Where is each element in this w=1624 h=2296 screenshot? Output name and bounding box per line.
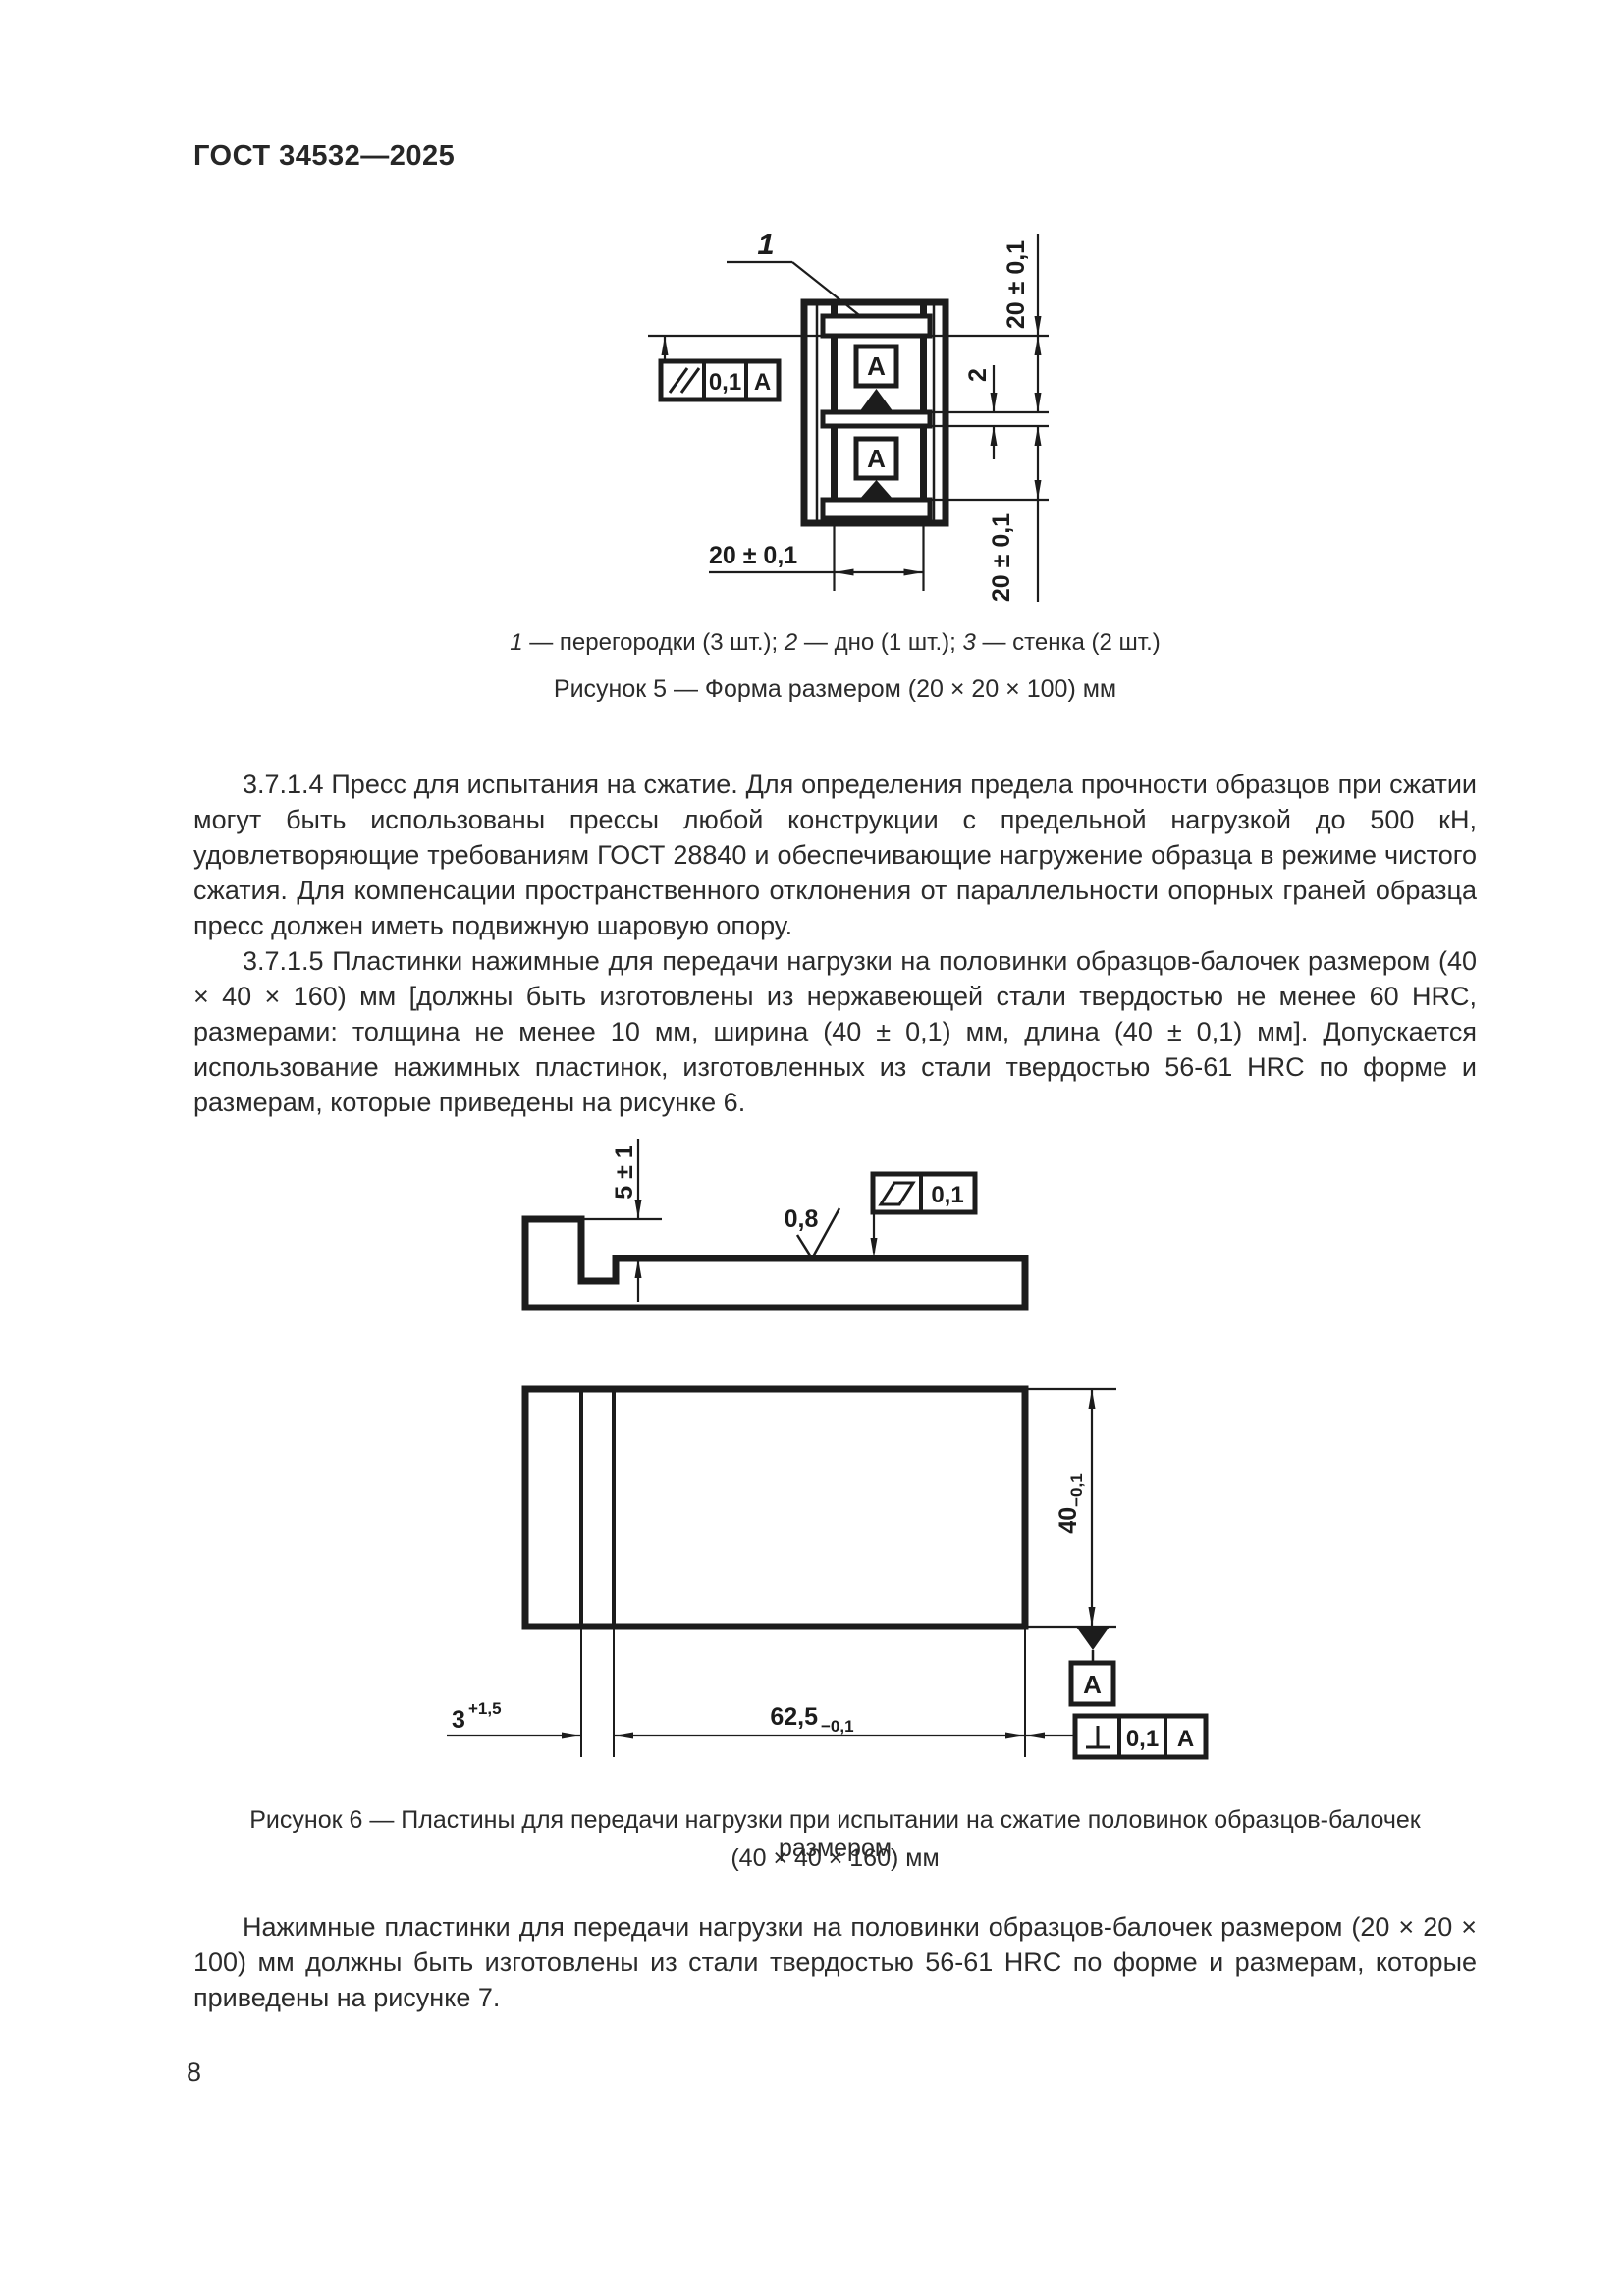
datum-triangle-icon [1076, 1627, 1110, 1650]
perpendicularity-datum-ref: A [1177, 1726, 1194, 1752]
dimension-label: 20 ± 0,1 [709, 542, 797, 569]
datum-letter: A [867, 444, 886, 473]
position-number: 1 [757, 227, 774, 261]
dimension-label: 40−0,1 [1055, 1473, 1086, 1533]
dimension-tolerance: +1,5 [468, 1699, 502, 1718]
partition-top [823, 316, 930, 336]
figure5-caption: Рисунок 5 — Форма размером (20 × 20 × 10… [193, 675, 1477, 704]
dimension-tolerance: −0,1 [821, 1717, 854, 1735]
datum-letter: A [1083, 1670, 1102, 1699]
paragraph-3715: 3.7.1.5 Пластинки нажимные для передачи … [193, 943, 1477, 1120]
dimension-label: 20 ± 0,1 [1002, 240, 1030, 329]
body-paragraphs: 3.7.1.4 Пресс для испытания на сжатие. Д… [193, 767, 1477, 1120]
parallelism-tolerance-value: 0,1 [709, 369, 741, 396]
plate-profile-view [525, 1219, 1025, 1308]
partition-middle [823, 412, 930, 426]
dimension-label: 62,5 [770, 1703, 818, 1731]
figure5-legend: 1 — перегородки (3 шт.); 2 — дно (1 шт.)… [193, 629, 1477, 657]
dimension-label: 2 [964, 368, 992, 382]
page-number: 8 [187, 2057, 201, 2088]
figure6-technical-drawing: 5 ± 1 0,8 0,1 40−0,1 A 3 +1,5 62,5 −0,1 … [412, 1119, 1222, 1767]
flatness-icon [881, 1183, 913, 1204]
datum-triangle-icon [859, 389, 893, 412]
datum-letter: A [867, 351, 886, 381]
datum-triangle-icon [859, 480, 893, 500]
paragraph-3714: 3.7.1.4 Пресс для испытания на сжатие. Д… [193, 767, 1477, 943]
flatness-tolerance-value: 0,1 [931, 1182, 963, 1208]
body-paragraph: Нажимные пластинки для передачи нагрузки… [193, 1909, 1477, 2015]
figure5-technical-drawing: 1 A A 0,1 A 20 ± 0,1 2 20 ± 0,1 20 ± 0,1 [638, 221, 1060, 609]
figure6-caption-line2: (40 × 40 × 160) мм [193, 1844, 1477, 1873]
dimension-label: 20 ± 0,1 [988, 513, 1015, 602]
partition-bottom [823, 500, 930, 518]
perpendicularity-tolerance-value: 0,1 [1126, 1726, 1159, 1752]
plate-plan-view [525, 1389, 1025, 1627]
dimension-label: 3 [452, 1706, 465, 1734]
dimension-label: 5 ± 1 [611, 1145, 638, 1200]
roughness-value: 0,8 [785, 1205, 819, 1233]
parallelism-datum-ref: A [754, 369, 771, 396]
document-page: ГОСТ 34532—2025 [0, 0, 1624, 2296]
document-code: ГОСТ 34532—2025 [193, 140, 455, 173]
